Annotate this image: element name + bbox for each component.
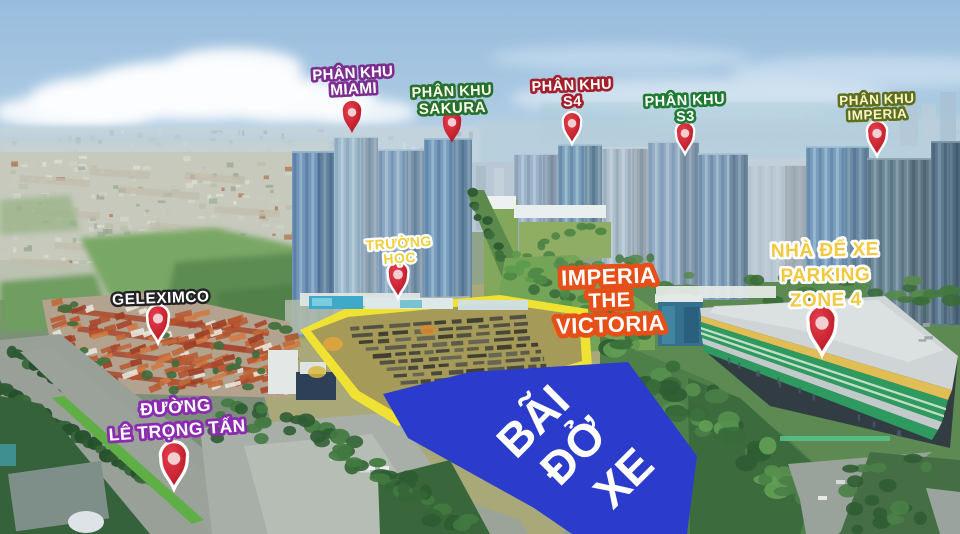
svg-text:IMPERIA: IMPERIA (561, 262, 657, 290)
svg-text:PARKING: PARKING (780, 264, 870, 287)
svg-text:HỌC: HỌC (383, 249, 417, 267)
svg-text:THE: THE (588, 288, 631, 312)
svg-text:NHÀ ĐỂ XE: NHÀ ĐỂ XE (771, 238, 879, 262)
svg-text:MIAMI: MIAMI (330, 80, 377, 99)
svg-text:SAKURA: SAKURA (419, 99, 487, 118)
svg-text:S4: S4 (563, 94, 582, 111)
svg-text:IMPERIA: IMPERIA (847, 106, 907, 123)
svg-text:S3: S3 (676, 109, 695, 126)
svg-text:ZONE 4: ZONE 4 (790, 289, 862, 311)
svg-text:GELEXIMCO: GELEXIMCO (112, 288, 210, 308)
svg-text:VICTORIA: VICTORIA (556, 310, 666, 339)
